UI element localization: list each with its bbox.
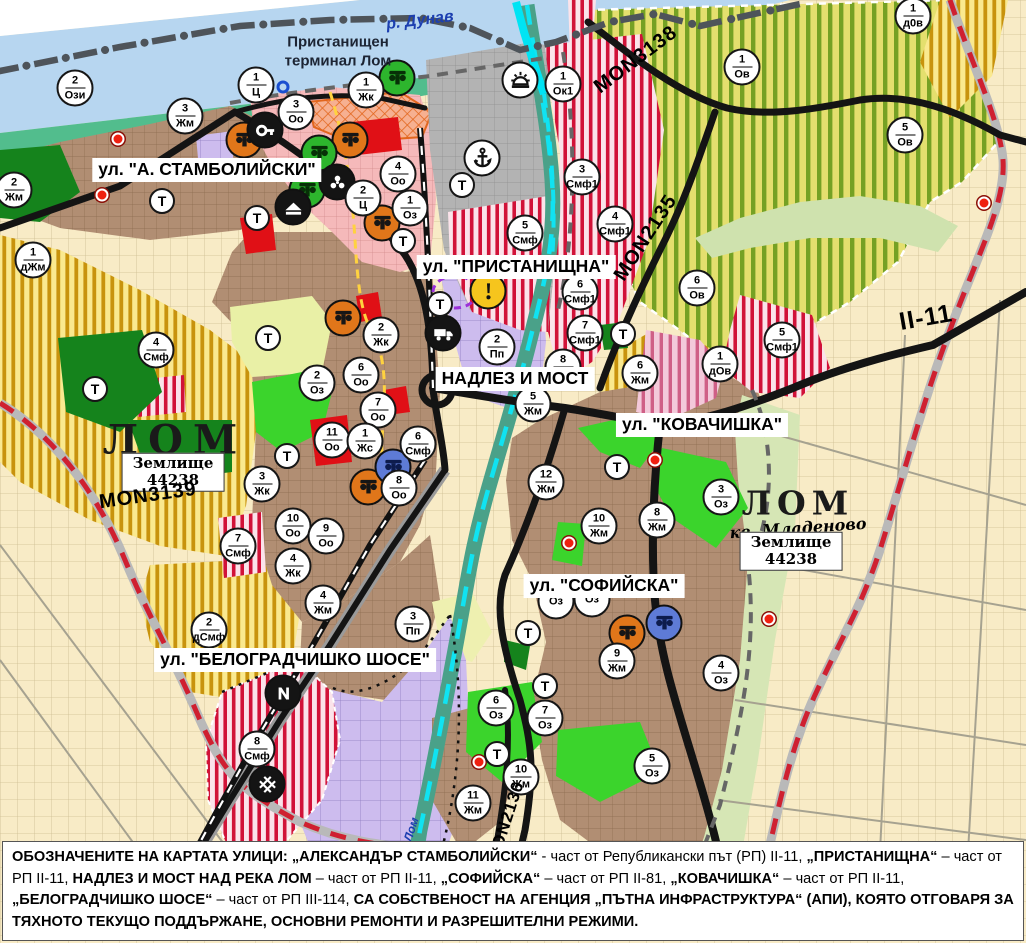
caption-segment: - част от Републикански път (РП) II-11, — [538, 849, 807, 865]
map-caption: ОБОЗНАЧЕНИТЕ НА КАРТАТА УЛИЦИ: „АЛЕКСАНД… — [2, 841, 1024, 941]
caption-segment: – част от РП III-114, — [212, 892, 353, 908]
caption-segment: „СОФИЙСКА“ — [441, 871, 541, 887]
caption-segment: НАДЛЕЗ И МОСТ НАД РЕКА ЛОМ — [73, 871, 312, 887]
zoning-map: 2Ози1Ц3Оо1Жк3Жм2Жм1дЖм4Оо2Ц1Оз1Ок13Смф14… — [0, 0, 1026, 943]
caption-segment: „БЕЛОГРАДЧИШКО ШОСЕ“ — [12, 892, 212, 908]
map-base — [0, 0, 1026, 943]
map-caption-text: ОБОЗНАЧЕНИТЕ НА КАРТАТА УЛИЦИ: „АЛЕКСАНД… — [12, 847, 1014, 933]
caption-segment: „ПРИСТАНИЩНА“ — [806, 849, 937, 865]
caption-segment: „АЛЕКСАНДЪР СТАМБОЛИЙСКИ“ — [292, 849, 538, 865]
caption-segment: – част от РП II-11, — [312, 871, 441, 887]
caption-segment: ОБОЗНАЧЕНИТЕ НА КАРТАТА УЛИЦИ: — [12, 849, 292, 865]
caption-segment: „КОВАЧИШКА“ — [670, 871, 779, 887]
caption-segment: – част от РП II-11, — [779, 871, 904, 887]
caption-segment: – част от РП II-81, — [540, 871, 670, 887]
